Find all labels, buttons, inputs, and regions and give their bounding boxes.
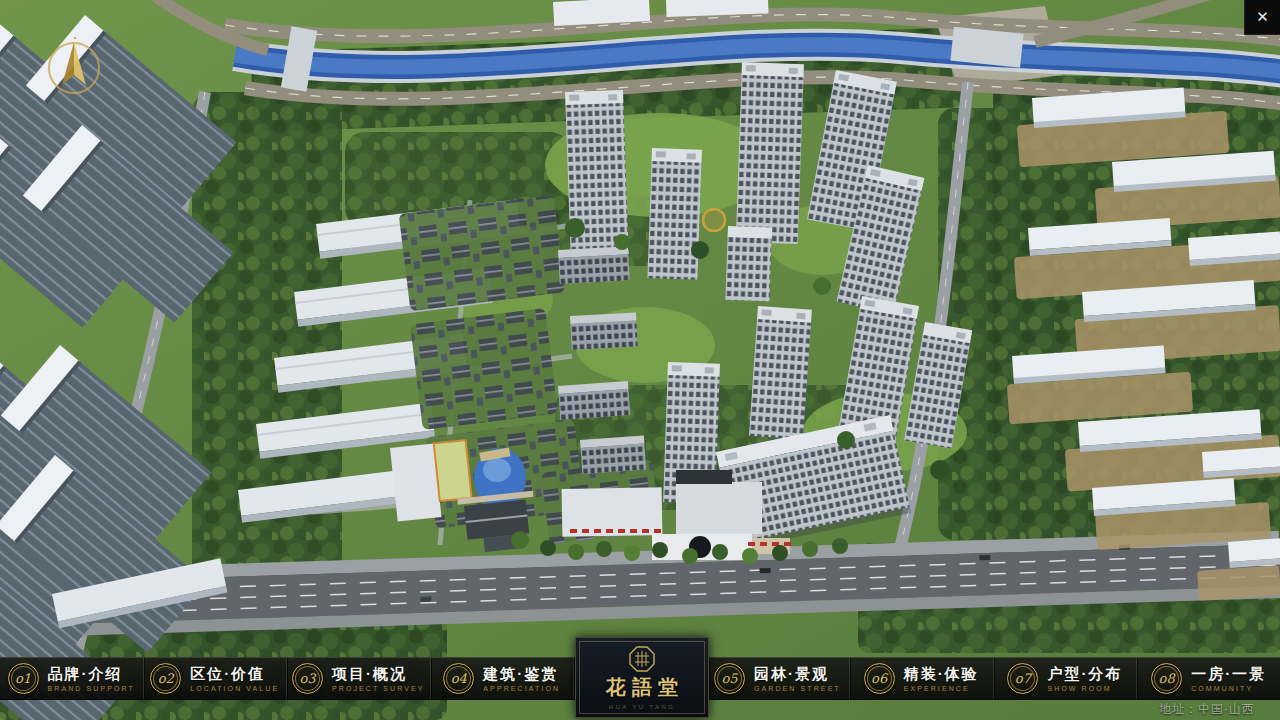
brand-title: 花語堂 [600, 674, 684, 701]
brand-seal-icon [629, 646, 655, 672]
nav-number-badge: o8 [1151, 663, 1182, 694]
nav-number-badge: o2 [150, 663, 181, 694]
brand-logo-panel[interactable]: 花語堂 HUA YU TANG [575, 637, 709, 718]
nav-item-interior[interactable]: o6 精装·体验EXPERIENCE [850, 658, 994, 699]
nav-label: 项目·概况 [332, 666, 425, 681]
nav-number-badge: o1 [8, 663, 39, 694]
nav-label: 户型·分布 [1047, 666, 1122, 681]
nav-label: 品牌·介绍 [48, 666, 135, 681]
close-button[interactable]: ✕ [1244, 0, 1280, 35]
nav-sublabel: GARDEN STREET [754, 685, 841, 692]
close-icon: ✕ [1256, 8, 1269, 26]
compass-icon [42, 35, 106, 99]
nav-sublabel: EXPERIENCE [904, 685, 979, 692]
bridge-east [950, 27, 1023, 68]
nav-number-badge: o3 [292, 663, 323, 694]
nav-number-badge: o6 [864, 663, 895, 694]
brand-subtitle: HUA YU TANG [609, 704, 675, 710]
nav-item-views[interactable]: o8 一房·一景COMMUNITY [1137, 658, 1280, 699]
nav-label: 园林·景观 [754, 666, 841, 681]
nav-number-badge: o7 [1007, 663, 1038, 694]
nav-group-left: o1 品牌·介绍BRAND SUPPORT o2 区位·价值LOCATION V… [0, 658, 574, 699]
nav-sublabel: PROJECT SURVEY [332, 685, 425, 692]
nav-group-right: o5 园林·景观GARDEN STREET o6 精装·体验EXPERIENCE… [706, 658, 1280, 699]
nav-sublabel: LOCATION VALUE [190, 685, 279, 692]
nav-item-garden[interactable]: o5 园林·景观GARDEN STREET [706, 658, 850, 699]
nav-label: 建筑·鉴赏 [483, 666, 560, 681]
nav-item-project[interactable]: o3 项目·概况PROJECT SURVEY [287, 658, 431, 699]
nav-sublabel: APPRECIATION [483, 685, 560, 692]
address-text: 地址：中国·山西 [1159, 701, 1255, 718]
nav-item-brand[interactable]: o1 品牌·介绍BRAND SUPPORT [0, 658, 144, 699]
nav-number-badge: o4 [443, 663, 474, 694]
nav-sublabel: BRAND SUPPORT [48, 685, 135, 692]
nav-item-location[interactable]: o2 区位·价值LOCATION VALUE [144, 658, 288, 699]
nav-sublabel: COMMUNITY [1191, 685, 1266, 692]
nav-sublabel: SHOW ROOM [1047, 685, 1122, 692]
nav-item-floorplan[interactable]: o7 户型·分布SHOW ROOM [994, 658, 1138, 699]
nav-label: 精装·体验 [904, 666, 979, 681]
gold-landmark [703, 209, 725, 231]
masterplan-render[interactable] [0, 0, 1280, 720]
nav-label: 一房·一景 [1191, 666, 1266, 681]
nav-item-architecture[interactable]: o4 建筑·鉴赏APPRECIATION [431, 658, 575, 699]
nav-label: 区位·价值 [190, 666, 279, 681]
nav-number-badge: o5 [714, 663, 745, 694]
